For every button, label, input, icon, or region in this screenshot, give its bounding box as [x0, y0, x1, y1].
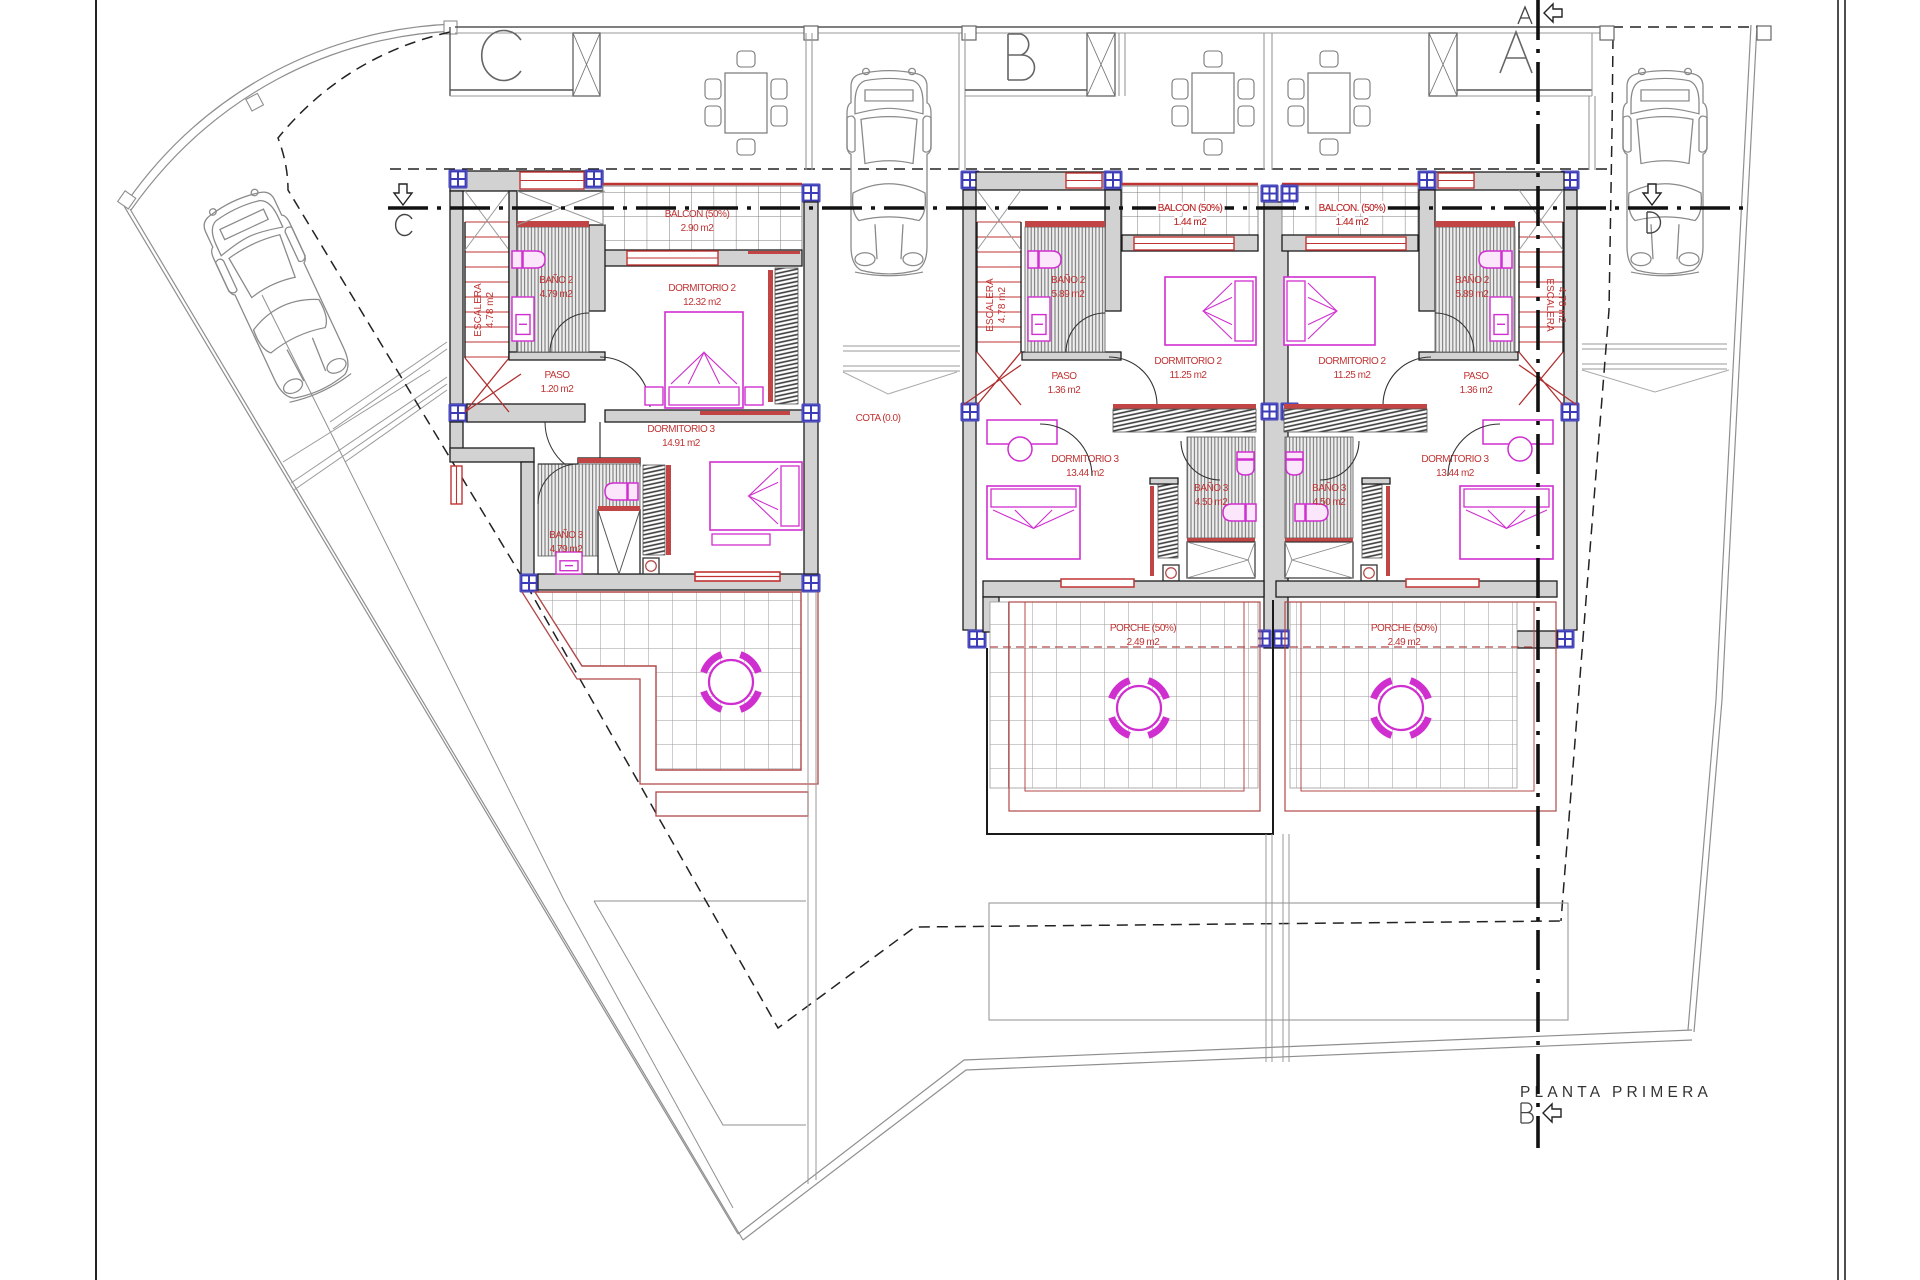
- svg-text:ESCALERA: ESCALERA: [1544, 278, 1555, 332]
- svg-text:1.36 m2: 1.36 m2: [1048, 385, 1082, 396]
- svg-text:BALCON (50%): BALCON (50%): [1158, 203, 1223, 214]
- svg-text:BAÑO 3: BAÑO 3: [549, 528, 584, 541]
- svg-text:PLANTA PRIMERA: PLANTA PRIMERA: [1520, 1084, 1712, 1101]
- svg-text:BAÑO 2: BAÑO 2: [539, 273, 574, 286]
- svg-text:5.89 m2: 5.89 m2: [1456, 289, 1490, 300]
- svg-text:4.78 m2: 4.78 m2: [1556, 287, 1567, 324]
- svg-text:BALCON. (50%): BALCON. (50%): [1319, 203, 1386, 214]
- svg-text:DORMITORIO 3: DORMITORIO 3: [1051, 454, 1119, 465]
- svg-text:11.25 m2: 11.25 m2: [1170, 370, 1208, 381]
- svg-text:2.49 m2: 2.49 m2: [1127, 637, 1161, 648]
- svg-text:14.91 m2: 14.91 m2: [662, 438, 701, 449]
- svg-text:4.50 m2: 4.50 m2: [1195, 497, 1229, 508]
- svg-text:DORMITORIO 2: DORMITORIO 2: [668, 283, 736, 294]
- svg-text:1.20 m2: 1.20 m2: [541, 384, 575, 395]
- svg-text:PASO: PASO: [544, 370, 570, 381]
- svg-text:11.25 m2: 11.25 m2: [1334, 370, 1372, 381]
- svg-text:PORCHE (50%): PORCHE (50%): [1110, 623, 1176, 634]
- svg-text:13.44 m2: 13.44 m2: [1066, 468, 1105, 479]
- svg-text:4.78 m2: 4.78 m2: [997, 286, 1008, 323]
- svg-text:4.79 m2: 4.79 m2: [550, 544, 584, 555]
- svg-text:4.78 m2: 4.78 m2: [485, 291, 496, 328]
- svg-text:COTA (0.0): COTA (0.0): [856, 413, 901, 424]
- svg-text:2.90 m2: 2.90 m2: [681, 223, 715, 234]
- svg-text:13.44 m2: 13.44 m2: [1436, 468, 1475, 479]
- svg-text:BALCON (50%): BALCON (50%): [665, 209, 730, 220]
- svg-text:4.79 m2: 4.79 m2: [540, 289, 574, 300]
- svg-text:PASO: PASO: [1051, 371, 1077, 382]
- svg-text:DORMITORIO 2: DORMITORIO 2: [1154, 356, 1222, 367]
- svg-text:12.32 m2: 12.32 m2: [683, 297, 722, 308]
- svg-text:DORMITORIO 3: DORMITORIO 3: [1421, 454, 1489, 465]
- svg-text:DORMITORIO 3: DORMITORIO 3: [647, 424, 715, 435]
- svg-text:ESCALERA: ESCALERA: [473, 283, 484, 337]
- svg-text:1.44 m2: 1.44 m2: [1174, 217, 1208, 228]
- svg-text:BAÑO 3: BAÑO 3: [1312, 481, 1347, 494]
- svg-text:5.89 m2: 5.89 m2: [1052, 289, 1086, 300]
- svg-text:ESCALERA: ESCALERA: [985, 278, 996, 332]
- svg-text:1.36 m2: 1.36 m2: [1460, 385, 1494, 396]
- svg-text:4.50 m2: 4.50 m2: [1313, 497, 1347, 508]
- svg-text:BAÑO 2: BAÑO 2: [1051, 273, 1086, 286]
- svg-text:PORCHE (50%): PORCHE (50%): [1371, 623, 1437, 634]
- svg-text:DORMITORIO 2: DORMITORIO 2: [1318, 356, 1386, 367]
- svg-text:2.49 m2: 2.49 m2: [1388, 637, 1422, 648]
- svg-text:PASO: PASO: [1463, 371, 1489, 382]
- svg-text:1.44 m2: 1.44 m2: [1336, 217, 1370, 228]
- svg-text:BAÑO 2: BAÑO 2: [1455, 273, 1490, 286]
- svg-text:BAÑO 3: BAÑO 3: [1194, 481, 1229, 494]
